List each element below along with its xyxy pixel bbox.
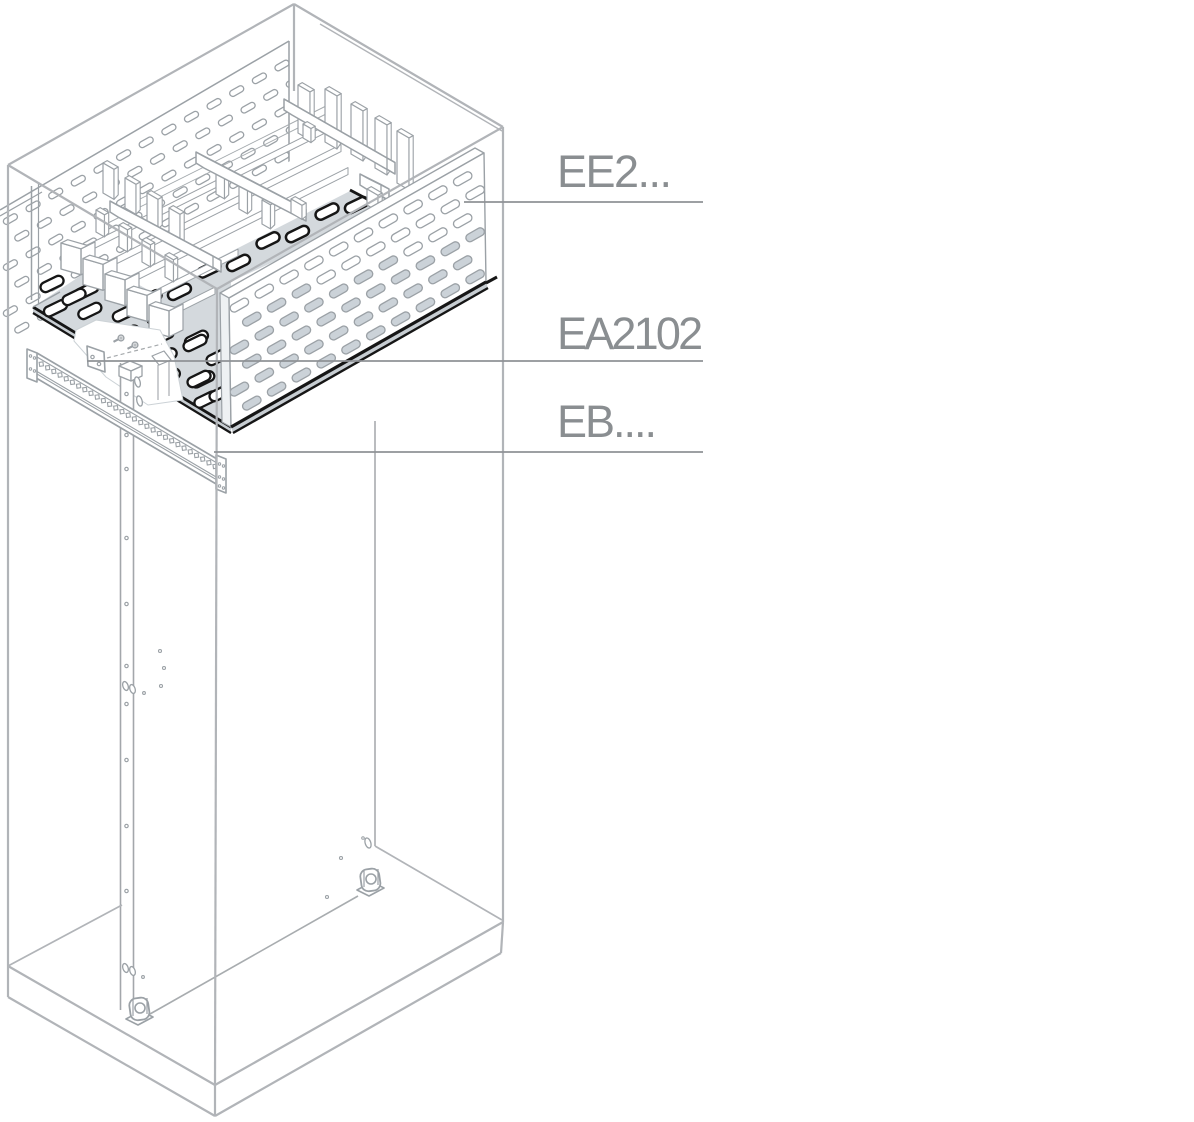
svg-text:EA2102: EA2102 bbox=[557, 308, 701, 359]
svg-text:EB....: EB.... bbox=[557, 396, 655, 447]
svg-text:EE2...: EE2... bbox=[557, 146, 671, 197]
